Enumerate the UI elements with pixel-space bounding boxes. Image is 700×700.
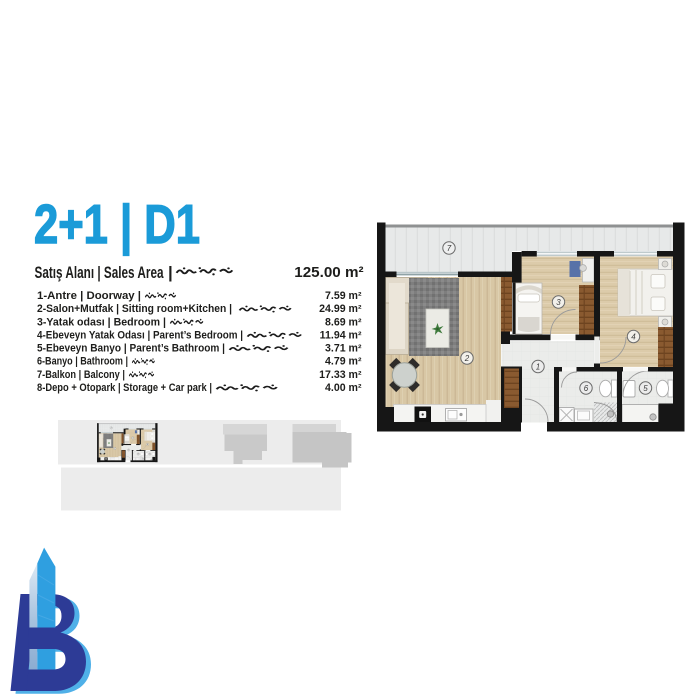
- svg-text:17.33 m²: 17.33 m²: [319, 369, 362, 381]
- svg-text:6-Banyo | Bathroom |: 6-Banyo | Bathroom |: [37, 356, 128, 368]
- svg-text:4.79 m²: 4.79 m²: [325, 356, 362, 368]
- svg-text:7.59 m²: 7.59 m²: [325, 290, 362, 302]
- svg-text:4: 4: [631, 333, 636, 342]
- svg-text:8-Depo + Otopark | Storage + C: 8-Depo + Otopark | Storage + Car park |: [37, 382, 212, 394]
- svg-text:5-Ebeveyn Banyo | Parent’s Bat: 5-Ebeveyn Banyo | Parent’s Bathroom |: [37, 343, 225, 355]
- svg-text:2-Salon+Mutfak | Sitting room+: 2-Salon+Mutfak | Sitting room+Kitchen |: [37, 303, 232, 315]
- svg-text:3-Yatak odası | Bedroom |: 3-Yatak odası | Bedroom |: [37, 316, 166, 328]
- svg-text:8.69 m²: 8.69 m²: [325, 316, 362, 328]
- svg-text:125.00 m²: 125.00 m²: [294, 264, 363, 281]
- svg-text:1-Antre | Doorway |: 1-Antre | Doorway |: [37, 290, 141, 302]
- svg-text:11.94 m²: 11.94 m²: [320, 329, 362, 341]
- svg-text:1: 1: [536, 363, 540, 372]
- svg-text:7: 7: [447, 244, 452, 253]
- svg-text:2: 2: [464, 354, 470, 363]
- svg-text:Satış Alanı | Sales Area: Satış Alanı | Sales Area: [35, 263, 164, 282]
- svg-text:|: |: [168, 263, 173, 282]
- svg-text:4-Ebeveyn Yatak Odası | Parent: 4-Ebeveyn Yatak Odası | Parent’s Bedroom…: [37, 329, 243, 341]
- svg-text:4.00 m²: 4.00 m²: [325, 382, 362, 394]
- svg-text:3.71 m²: 3.71 m²: [325, 343, 362, 355]
- svg-text:6: 6: [584, 384, 589, 393]
- svg-text:3: 3: [556, 298, 561, 307]
- svg-text:2+1 | D1: 2+1 | D1: [34, 194, 200, 256]
- svg-text:7-Balkon | Balcony |: 7-Balkon | Balcony |: [37, 369, 125, 381]
- svg-text:24.99 m²: 24.99 m²: [319, 303, 362, 315]
- svg-text:5: 5: [643, 384, 648, 393]
